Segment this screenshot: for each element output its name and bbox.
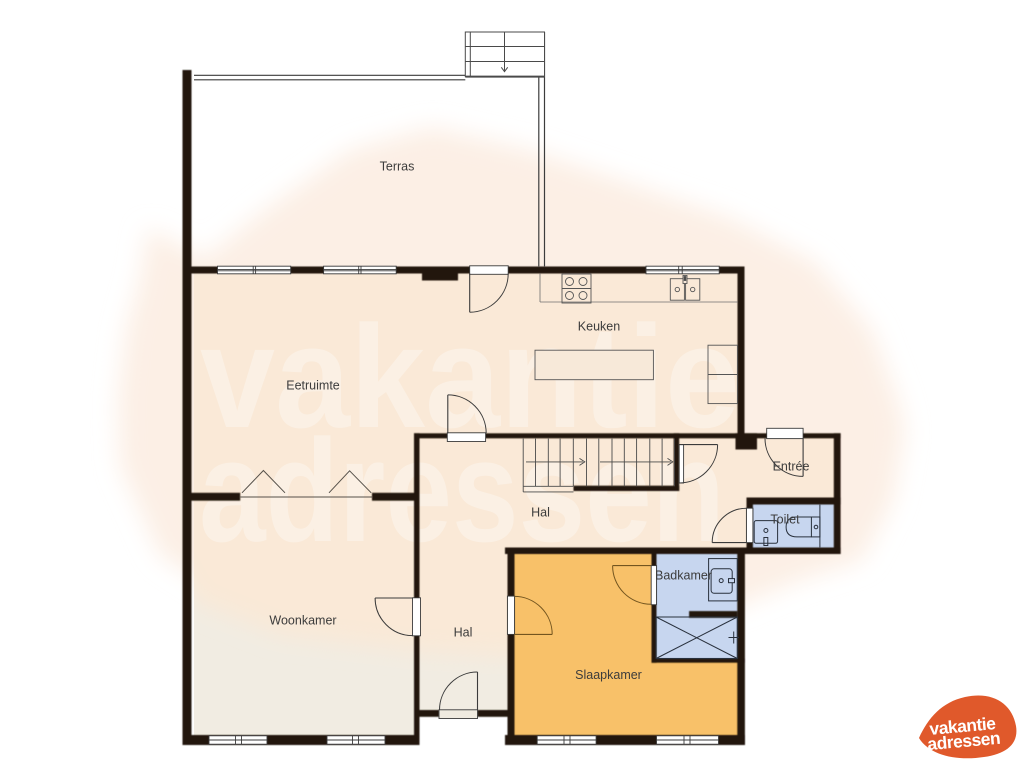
svg-text:Toilet: Toilet xyxy=(770,513,800,527)
svg-text:Entrée: Entrée xyxy=(773,460,810,474)
svg-text:Hal: Hal xyxy=(531,506,550,520)
svg-text:Terras: Terras xyxy=(380,160,415,174)
svg-text:Badkamer: Badkamer xyxy=(655,569,712,583)
svg-text:Slaapkamer: Slaapkamer xyxy=(575,668,642,682)
svg-text:Eetruimte: Eetruimte xyxy=(286,379,340,393)
svg-text:Woonkamer: Woonkamer xyxy=(269,614,336,628)
svg-text:Hal: Hal xyxy=(454,626,473,640)
svg-text:Keuken: Keuken xyxy=(578,320,620,334)
